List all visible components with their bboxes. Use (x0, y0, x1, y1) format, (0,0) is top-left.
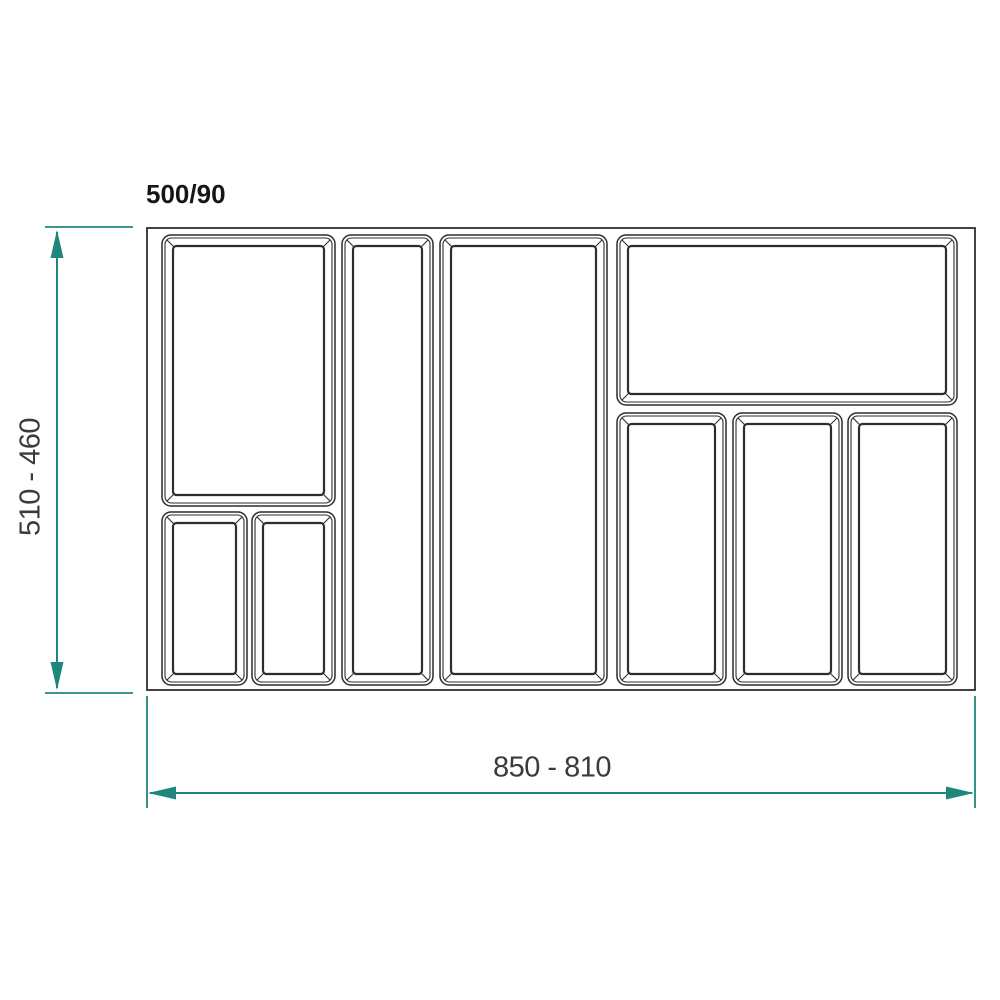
compartment-outlines (162, 235, 957, 685)
cutlery-tray-technical-drawing: 500/90 510 - 460 850 - 810 (0, 0, 1000, 1000)
compartment-top-right-wide (617, 235, 957, 405)
compartment-center-narrow-column (342, 235, 433, 685)
horizontal-dimension-arrow-left-icon (148, 787, 176, 800)
compartment-center-wide-column (440, 235, 607, 685)
compartment-bottom-left-small-2 (252, 512, 335, 685)
compartment-right-column-3 (848, 413, 957, 685)
horizontal-dimension-arrow-right-icon (946, 787, 974, 800)
vertical-dimension-arrow-down-icon (51, 662, 64, 690)
compartment-top-left-tall (162, 235, 335, 506)
compartment-right-column-1 (617, 413, 726, 685)
horizontal-dimension-label: 850 - 810 (493, 752, 611, 785)
tray-diagram (0, 0, 1000, 1000)
compartment-bottom-left-small-1 (162, 512, 247, 685)
vertical-dimension (45, 227, 133, 693)
compartment-right-column-2 (733, 413, 842, 685)
vertical-dimension-arrow-up-icon (51, 230, 64, 258)
vertical-dimension-label: 510 - 460 (15, 418, 48, 536)
